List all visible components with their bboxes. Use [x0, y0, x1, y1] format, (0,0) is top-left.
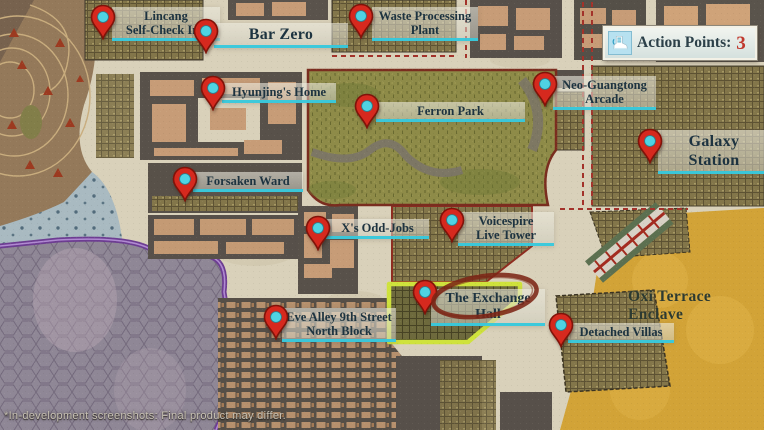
action-points-label: Action Points:	[637, 34, 731, 52]
location-label-hyunjings-home[interactable]: Hyunjing's Home	[222, 83, 336, 103]
location-label-xs-odd-jobs[interactable]: X's Odd-Jobs	[326, 219, 429, 239]
map-pin-eve-alley-9th-street-north-block[interactable]	[263, 304, 289, 340]
map-pin-the-exchange-hall[interactable]	[412, 279, 438, 315]
action-points-badge: Action Points: 3	[603, 26, 757, 60]
locations-layer: LincangSelf-Check Inn Bar Zero Waste Pro…	[0, 0, 764, 430]
map-pin-galaxy-station[interactable]	[637, 128, 663, 164]
location-label-detached-villas[interactable]: Detached Villas	[568, 323, 674, 343]
location-label-voicespire-live-tower[interactable]: VoicespireLive Tower	[458, 212, 554, 246]
map-pin-lincang-self-check-inn[interactable]	[90, 4, 116, 40]
map-pin-detached-villas[interactable]	[548, 312, 574, 348]
map-pin-waste-processing-plant[interactable]	[348, 3, 374, 39]
location-label-forsaken-ward[interactable]: Forsaken Ward	[193, 172, 303, 192]
action-points-value: 3	[736, 34, 746, 53]
boot-icon	[608, 31, 632, 55]
location-label-waste-processing-plant[interactable]: Waste ProcessingPlant	[372, 7, 478, 41]
map-pin-forsaken-ward[interactable]	[172, 166, 198, 202]
map-pin-xs-odd-jobs[interactable]	[305, 215, 331, 251]
map-pin-bar-zero[interactable]	[193, 18, 219, 54]
location-label-neo-guangtong-arcade[interactable]: Neo-GuangtongArcade	[553, 76, 656, 110]
city-map-screen: LincangSelf-Check Inn Bar Zero Waste Pro…	[0, 0, 764, 430]
map-pin-voicespire-live-tower[interactable]	[439, 207, 465, 243]
disclaimer-text: *In-development screenshots: Final produ…	[4, 410, 286, 422]
location-label-eve-alley-9th-street-north-block[interactable]: Eve Alley 9th StreetNorth Block	[282, 308, 396, 342]
location-label-galaxy-station[interactable]: Galaxy Station	[658, 130, 764, 174]
map-pin-neo-guangtong-arcade[interactable]	[532, 71, 558, 107]
location-label-the-exchange-hall[interactable]: The Exchange Hall	[431, 289, 545, 326]
location-label-bar-zero[interactable]: Bar Zero	[214, 23, 348, 48]
map-pin-hyunjings-home[interactable]	[200, 75, 226, 111]
location-label-ferron-park[interactable]: Ferron Park	[376, 102, 525, 122]
map-pin-ferron-park[interactable]	[354, 93, 380, 129]
